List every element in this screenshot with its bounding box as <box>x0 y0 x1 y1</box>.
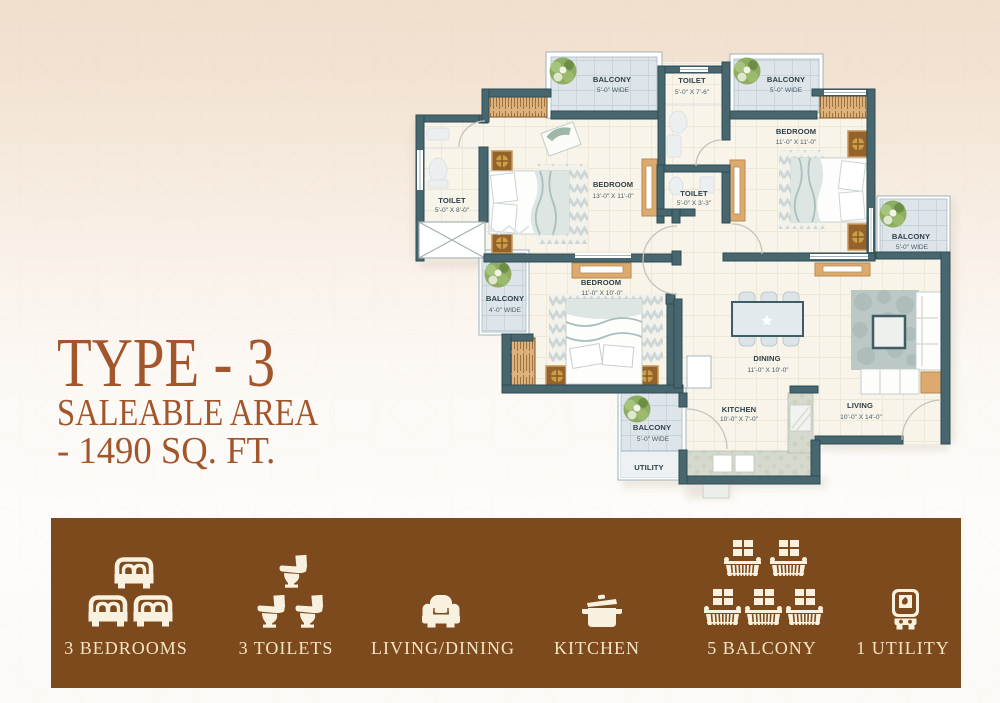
svg-text:KITCHEN: KITCHEN <box>722 405 756 414</box>
svg-text:BALCONY: BALCONY <box>486 294 524 303</box>
svg-text:BEDROOM: BEDROOM <box>581 278 621 287</box>
svg-text:5'-0" X 3'-3": 5'-0" X 3'-3" <box>677 200 712 207</box>
svg-text:BALCONY: BALCONY <box>892 232 930 241</box>
svg-text:4'-0" WIDE: 4'-0" WIDE <box>489 307 522 314</box>
svg-text:11'-0" X 11'-0": 11'-0" X 11'-0" <box>776 139 817 146</box>
svg-text:TOILET: TOILET <box>438 196 466 205</box>
svg-text:DINING: DINING <box>753 354 780 363</box>
svg-text:5'-0" WIDE: 5'-0" WIDE <box>896 244 929 251</box>
svg-text:BEDROOM: BEDROOM <box>776 127 816 136</box>
svg-text:13'-0" X 11'-0": 13'-0" X 11'-0" <box>592 193 634 200</box>
svg-text:5'-0" WIDE: 5'-0" WIDE <box>637 436 670 443</box>
svg-text:TOILET: TOILET <box>680 189 708 198</box>
svg-text:5'-0" WIDE: 5'-0" WIDE <box>597 87 630 94</box>
svg-text:BALCONY: BALCONY <box>633 423 671 432</box>
svg-text:BEDROOM: BEDROOM <box>593 180 633 189</box>
svg-text:10'-0" X 7'-0": 10'-0" X 7'-0" <box>720 416 759 423</box>
svg-text:5'-0" WIDE: 5'-0" WIDE <box>770 87 803 94</box>
svg-text:10'-0" X 14'-0": 10'-0" X 14'-0" <box>840 414 882 421</box>
svg-text:5'-0" X 7'-6": 5'-0" X 7'-6" <box>675 89 710 96</box>
svg-text:11'-0" X 10'-0": 11'-0" X 10'-0" <box>581 290 623 297</box>
svg-text:UTILITY: UTILITY <box>634 463 663 472</box>
svg-text:BALCONY: BALCONY <box>593 75 631 84</box>
svg-text:LIVING: LIVING <box>847 401 873 410</box>
svg-text:TOILET: TOILET <box>678 76 706 85</box>
svg-text:5'-0" X 8'-0": 5'-0" X 8'-0" <box>435 207 470 214</box>
svg-text:BALCONY: BALCONY <box>767 75 805 84</box>
svg-text:11'-0" X 10'-0": 11'-0" X 10'-0" <box>747 367 789 374</box>
